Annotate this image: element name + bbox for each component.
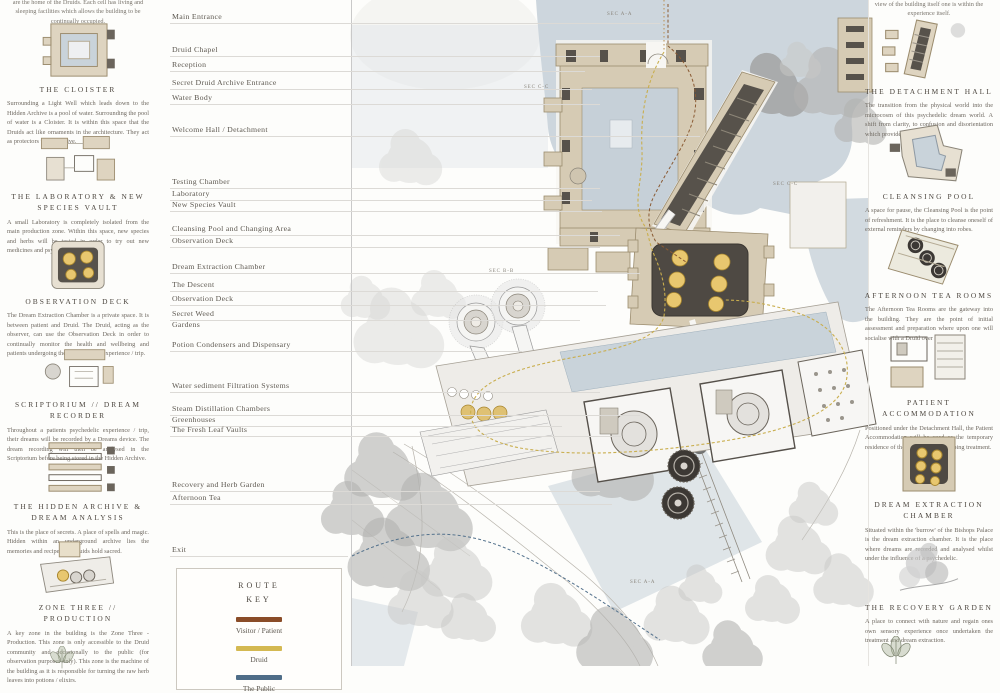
label-leader-line	[170, 320, 580, 321]
detachment-hall-plan-thumbnail	[877, 18, 981, 82]
map-label: Exit	[172, 545, 186, 556]
dream-extraction-plan-thumbnail	[877, 433, 981, 495]
map-label: Laboratory	[172, 189, 210, 200]
annotation-section: THE HIDDEN ARCHIVE & DREAM ANALYSISThis …	[4, 437, 152, 556]
label-leader-line	[170, 188, 600, 189]
label-leader-line	[170, 491, 600, 492]
legend-title: ROUTE KEY	[227, 579, 291, 606]
map-label: The Descent	[172, 280, 214, 291]
legend-entry-label: Druid	[177, 655, 341, 664]
section-title: THE LABORATORY & NEW SPECIES VAULT	[4, 191, 152, 214]
label-leader-line	[170, 136, 700, 137]
hidden-archive-plan-thumbnail	[26, 437, 130, 497]
section-title: AFTERNOON TEA ROOMS	[862, 290, 996, 301]
label-leader-line	[170, 436, 622, 437]
map-label: Water Body	[172, 93, 212, 104]
recovery-garden-plan-thumbnail	[877, 538, 981, 598]
leaf-icon	[878, 636, 914, 666]
annotation-section: AFTERNOON TEA ROOMSThe Afternoon Tea Roo…	[862, 226, 996, 343]
cloister-plan-thumbnail	[26, 20, 130, 80]
label-leader-line	[170, 291, 598, 292]
legend-color-swatch	[236, 617, 282, 622]
label-leader-line	[170, 104, 600, 105]
label-leader-line	[170, 56, 600, 57]
map-label: Afternoon Tea	[172, 493, 221, 504]
map-left-border	[351, 0, 352, 666]
patient-accommodation-plan-thumbnail	[877, 331, 981, 393]
label-leader-line	[170, 247, 600, 248]
section-title: PATIENT ACCOMMODATION	[862, 397, 996, 420]
section-title: THE DETACHMENT HALL	[862, 86, 996, 97]
zone-three-plan-thumbnail	[26, 540, 130, 598]
legend-entry: The Public	[177, 675, 341, 693]
map-label: The Fresh Leaf Vaults	[172, 425, 247, 436]
section-title: DREAM EXTRACTION CHAMBER	[862, 499, 996, 522]
water-wheel	[668, 450, 700, 482]
label-leader-line	[170, 273, 640, 274]
map-label: Secret Druid Archive Entrance	[172, 78, 277, 89]
map-label: Observation Deck	[172, 294, 233, 305]
legend-entry-label: Visitor / Patient	[177, 626, 341, 635]
section-cut-marker: SEC A-A	[630, 580, 655, 585]
legend-entry-label: The Public	[177, 684, 341, 693]
section-title: OBSERVATION DECK	[4, 296, 152, 307]
map-label: Potion Condensers and Dispensary	[172, 340, 291, 351]
section-title: THE RECOVERY GARDEN	[862, 602, 996, 613]
tea-rooms-plan-thumbnail	[877, 226, 981, 286]
right-annotation-column: view of the building itself one is withi…	[862, 0, 996, 666]
section-title: ZONE THREE // PRODUCTION	[4, 602, 152, 625]
section-title: THE CLOISTER	[4, 84, 152, 95]
section-title: CLEANSING POOL	[862, 191, 996, 202]
label-leader-line	[170, 23, 660, 24]
section-cut-marker: SEC A-A	[607, 12, 632, 17]
laboratory-plan-thumbnail	[26, 133, 130, 187]
legend-color-swatch	[236, 675, 282, 680]
map-label: Observation Deck	[172, 236, 233, 247]
annotation-section: THE RECOVERY GARDENA place to connect wi…	[862, 538, 996, 646]
map-label: Steam Distillation Chambers	[172, 404, 270, 415]
map-label: New Species Vault	[172, 200, 236, 211]
label-leader-line	[170, 556, 348, 557]
section-cut-marker: SEC B-B	[489, 269, 514, 274]
annotation-section: CLEANSING POOLA space for pause, the Cle…	[862, 123, 996, 235]
water-wheel	[662, 487, 694, 519]
section-cut-marker: SEC C-C	[773, 182, 798, 187]
label-leader-line	[170, 392, 600, 393]
section-cut-marker: SEC C-C	[524, 85, 549, 90]
annotation-section: OBSERVATION DECKThe Dream Extraction Cha…	[4, 238, 152, 359]
label-leader-line	[170, 71, 585, 72]
map-label: Cleansing Pool and Changing Area	[172, 224, 291, 235]
label-leader-line	[170, 504, 612, 505]
observation-deck-plan-thumbnail	[26, 238, 130, 292]
label-leader-line	[170, 415, 640, 416]
section-title: SCRIPTORIUM // DREAM RECORDER	[4, 399, 152, 422]
cleansing-pool-plan-thumbnail	[877, 123, 981, 187]
map-label: Water sediment Filtration Systems	[172, 381, 289, 392]
route-key-legend: ROUTE KEY Visitor / PatientDruidThe Publ…	[176, 568, 342, 690]
legend-entry: Druid	[177, 646, 341, 664]
map-label: Recovery and Herb Garden	[172, 480, 265, 491]
annotation-section: THE DETACHMENT HALLThe transition from t…	[862, 18, 996, 139]
map-label: Greenhouses	[172, 415, 216, 426]
legend-color-swatch	[236, 646, 282, 651]
label-leader-line	[170, 351, 522, 352]
map-label: Testing Chamber	[172, 177, 230, 188]
map-label: Druid Chapel	[172, 45, 218, 56]
map-label: Dream Extraction Chamber	[172, 262, 265, 273]
label-leader-line	[170, 305, 606, 306]
leaf-icon	[44, 646, 80, 670]
map-label: Welcome Hall / Detachment	[172, 125, 268, 136]
left-annotation-column: are the home of the Druids. Each cell ha…	[4, 0, 152, 666]
annotation-section: THE CLOISTERSurrounding a Light Well whi…	[4, 20, 152, 147]
map-label: Main Entrance	[172, 12, 222, 23]
scriptorium-plan-thumbnail	[26, 343, 130, 395]
label-leader-line	[170, 235, 620, 236]
masterplan-poster: { "page": { "left_intro": "are the home …	[0, 0, 1000, 666]
section-title: THE HIDDEN ARCHIVE & DREAM ANALYSIS	[4, 501, 152, 524]
descent-stair	[570, 168, 586, 184]
legend-entry: Visitor / Patient	[177, 617, 341, 635]
map-label: Reception	[172, 60, 206, 71]
right-intro-text: view of the building itself one is withi…	[862, 0, 996, 19]
label-leader-line	[170, 211, 602, 212]
